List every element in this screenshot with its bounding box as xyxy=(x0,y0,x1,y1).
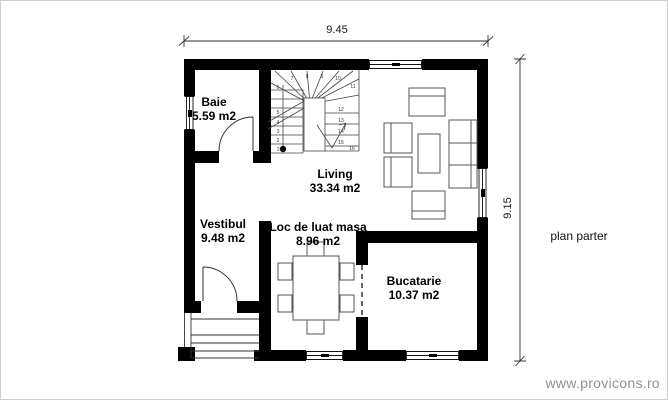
floor-plan-page: 1 2 3 4 5 6 7 8 9 10 11 12 13 14 15 16 xyxy=(0,0,668,400)
entrance-door xyxy=(203,267,237,301)
furniture-living xyxy=(384,88,477,219)
window-bottom-kitchen xyxy=(406,351,459,360)
stair-step-number: 2 xyxy=(277,138,280,144)
stair-step-number: 13 xyxy=(338,118,344,124)
stair-step-number: 5 xyxy=(277,110,280,116)
room-label-bucatarie: Bucatarie 10.37 m2 xyxy=(387,274,442,302)
stair-step-number: 1 xyxy=(277,147,280,153)
entrance-porch xyxy=(185,313,260,358)
stair-step-number: 6 xyxy=(277,85,280,91)
dining-chair xyxy=(340,295,354,312)
dimension-line-top xyxy=(179,35,493,47)
room-label-vestibul: Vestibul 9.48 m2 xyxy=(200,217,246,245)
dining-chair xyxy=(278,295,292,312)
stair-core xyxy=(304,98,325,151)
stair-step-number: 16 xyxy=(349,146,355,152)
staircase xyxy=(268,70,359,153)
dimension-width-label: 9.45 xyxy=(326,24,347,36)
stair-step-number: 15 xyxy=(338,140,344,146)
window-top xyxy=(369,60,422,69)
room-label-dining: Loc de luat masa 8.96 m2 xyxy=(269,220,366,248)
stair-step-number: 9 xyxy=(321,74,324,80)
window-bottom-dining xyxy=(306,351,343,360)
stair-step-number: 4 xyxy=(277,120,280,126)
room-area: 8.96 m2 xyxy=(269,234,366,248)
dining-chair xyxy=(307,320,324,334)
furniture-dining xyxy=(278,242,354,334)
room-label-baie: Baie 5.59 m2 xyxy=(192,95,236,123)
room-area: 9.48 m2 xyxy=(200,231,246,245)
room-label-living: Living 33.34 m2 xyxy=(310,167,361,195)
room-area: 33.34 m2 xyxy=(310,181,361,195)
stair-step-number: 12 xyxy=(338,107,344,113)
armchair-left-1 xyxy=(384,123,412,153)
window-right xyxy=(478,168,488,218)
room-name: Vestibul xyxy=(200,217,246,231)
website-watermark: www.provicons.ro xyxy=(545,375,660,391)
stair-step-number: 7 xyxy=(291,76,294,82)
coffee-table xyxy=(418,134,440,173)
armchair-bottom xyxy=(412,191,445,219)
armchair-left-2 xyxy=(384,157,412,187)
sofa xyxy=(449,120,477,188)
room-name: Living xyxy=(310,167,361,181)
armchair-top xyxy=(409,88,445,116)
room-name: Bucatarie xyxy=(387,274,442,288)
plan-caption: plan parter xyxy=(550,229,607,243)
porch-pier xyxy=(178,347,195,361)
stair-start-post xyxy=(280,146,286,152)
stair-step-number: 11 xyxy=(350,84,355,90)
doors xyxy=(203,117,253,301)
dining-chair xyxy=(340,263,354,280)
room-area: 5.59 m2 xyxy=(192,109,236,123)
room-name: Loc de luat masa xyxy=(269,220,366,234)
floor-plan-drawing: 1 2 3 4 5 6 7 8 9 10 11 12 13 14 15 16 xyxy=(1,1,668,400)
stair-step-number: 8 xyxy=(306,74,309,80)
room-name: Baie xyxy=(192,95,236,109)
dining-chair xyxy=(278,263,292,280)
dining-table xyxy=(293,256,339,320)
stair-step-number: 14 xyxy=(338,129,344,135)
dimension-height-label: 9.15 xyxy=(502,197,514,218)
room-area: 10.37 m2 xyxy=(387,288,442,302)
stair-step-number: 3 xyxy=(277,129,280,135)
dimension-line-right xyxy=(514,54,526,366)
stair-break-line xyxy=(268,100,306,129)
stair-step-number: 10 xyxy=(335,76,341,82)
